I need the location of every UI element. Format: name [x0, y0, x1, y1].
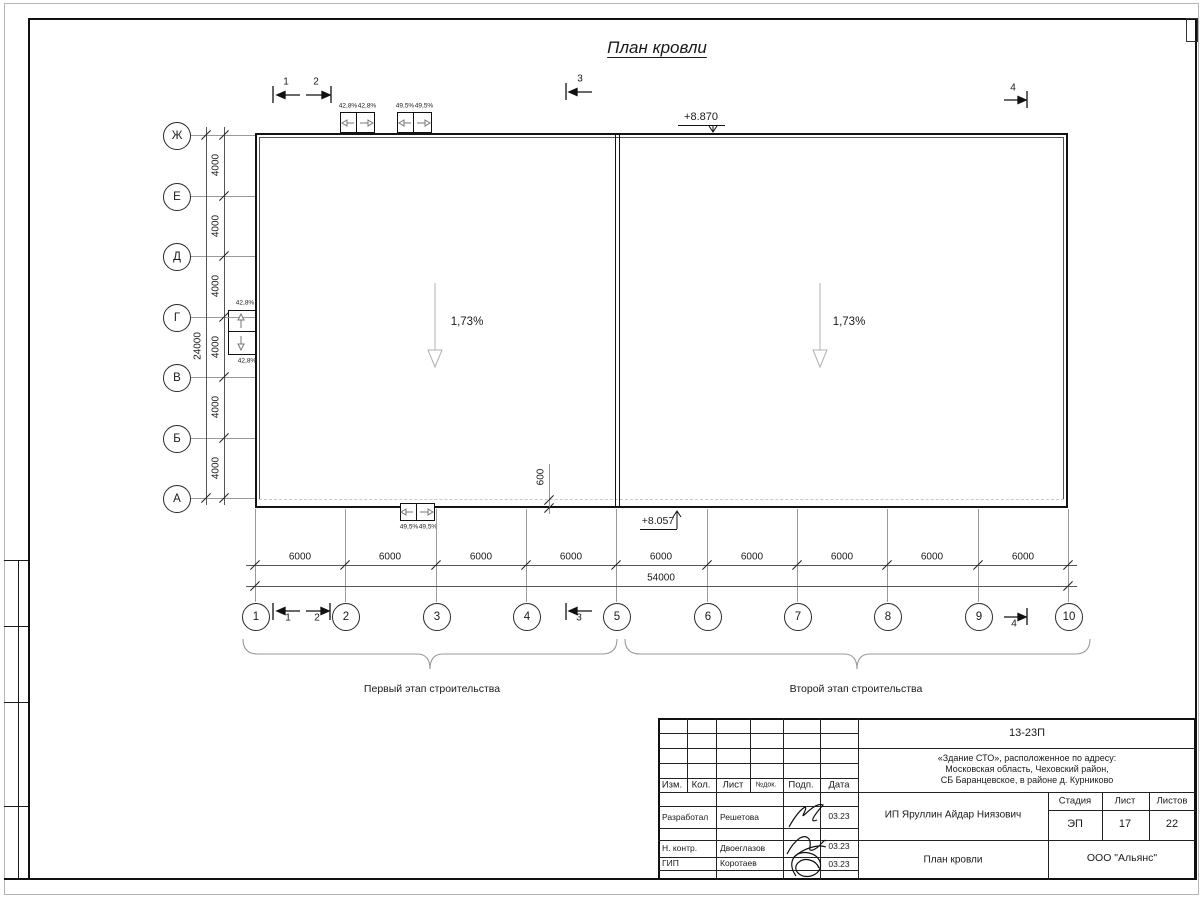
tb-col-data: Дата: [828, 780, 849, 791]
axis-bubble-number: 8: [874, 603, 902, 631]
axis-number: 6: [705, 611, 711, 623]
dim-6000: 6000: [831, 552, 853, 563]
dim-600: 600: [536, 469, 547, 486]
titleblock-line: [1048, 810, 1196, 811]
tb-address-line3: СБ Баранцевское, в районе д. Курниково: [941, 775, 1114, 785]
dim-24000: 24000: [193, 332, 204, 360]
frame-top: [28, 18, 1197, 20]
axis-extension-line: [436, 509, 437, 602]
tb-sheets-label: Листов: [1157, 796, 1188, 807]
funnel-slope-label: 42,8%: [236, 300, 254, 307]
dimension-line-horizontal-steps: [246, 565, 1077, 566]
elevation-bottom-underline: [640, 529, 677, 530]
axis-extension-line: [887, 509, 888, 602]
drain-funnel-box: [400, 503, 417, 521]
axis-letter: Г: [174, 312, 180, 324]
dim-6000: 6000: [1012, 552, 1034, 563]
titleblock-line: [658, 763, 858, 764]
axis-letter: Д: [173, 251, 181, 263]
axis-extension-line: [616, 509, 617, 602]
tb-sheet-name: План кровли: [924, 855, 983, 866]
tb-role: Разработал: [662, 812, 708, 822]
axis-bubble-number: 7: [784, 603, 812, 631]
left-margin-divider: [18, 560, 19, 878]
dimension-line-vertical-total: [206, 127, 207, 505]
stage-joint-wall: [615, 135, 620, 506]
axis-bubble-letter: Д: [163, 243, 191, 271]
left-margin-cell-line: [4, 626, 28, 627]
titleblock-line: [658, 870, 858, 871]
axis-bubble-number: 2: [332, 603, 360, 631]
parapet-inner-right: [1063, 137, 1064, 500]
axis-letter: Б: [173, 433, 181, 445]
tb-sheet-value: 17: [1119, 818, 1131, 830]
tb-col-podp: Подп.: [788, 780, 813, 791]
titleblock-line: [658, 857, 858, 858]
axis-letter: Е: [173, 191, 181, 203]
titleblock-line: [658, 733, 858, 734]
frame-left: [28, 18, 30, 880]
tb-role: ГИП: [662, 858, 679, 868]
dim-6000: 6000: [470, 552, 492, 563]
tb-stage-label: Стадия: [1059, 796, 1091, 807]
tb-sheet-label: Лист: [1115, 796, 1136, 807]
titleblock-line: [716, 718, 717, 880]
titleblock-line: [658, 828, 858, 829]
axis-bubble-letter: Ж: [163, 122, 191, 150]
left-margin-cell-line: [4, 806, 28, 807]
drawing-sheet: План кровли 42,8% 42,8% 49,5% 49,5% 42,8…: [0, 0, 1200, 900]
tb-address-line1: «Здание СТО», расположенное по адресу:: [938, 753, 1117, 763]
funnel-slope-label: 49,5%: [419, 524, 437, 531]
axis-number: 10: [1063, 611, 1076, 623]
dim-6000: 6000: [560, 552, 582, 563]
section-mark-label: 3: [577, 74, 583, 85]
parapet-inner-left: [259, 137, 260, 500]
axis-extension-line: [797, 509, 798, 602]
axis-bubble-number: 6: [694, 603, 722, 631]
section-mark-label: 4: [1011, 619, 1017, 630]
dim-4000: 4000: [211, 154, 222, 176]
titleblock-line: [750, 718, 751, 792]
drawing-title: План кровли: [607, 38, 707, 58]
dim-54000: 54000: [647, 573, 675, 584]
tb-role: Н. контр.: [662, 843, 697, 853]
dim-6000: 6000: [379, 552, 401, 563]
funnel-slope-label: 49,5%: [400, 524, 418, 531]
axis-number: 3: [434, 611, 440, 623]
tb-address-line2: Московская область, Чеховский район,: [945, 764, 1109, 774]
dim-6000: 6000: [921, 552, 943, 563]
drain-funnel-box: [340, 112, 357, 133]
slope-label-right: 1,73%: [833, 316, 866, 328]
axis-extension-line: [1068, 509, 1069, 602]
axis-bubble-letter: В: [163, 364, 191, 392]
section-mark-label: 3: [576, 613, 582, 624]
axis-bubble-letter: Б: [163, 425, 191, 453]
left-margin-cell-line: [4, 560, 28, 561]
funnel-slope-label: 42,8%: [238, 358, 256, 365]
tb-stage-value: ЭП: [1067, 818, 1083, 830]
dim-6000: 6000: [650, 552, 672, 563]
tb-company: ООО "Альянс": [1087, 852, 1157, 864]
roof-outline: [255, 133, 1068, 508]
tb-name: Решетова: [720, 812, 759, 822]
axis-number: 5: [614, 611, 620, 623]
axis-bubble-letter: Г: [163, 304, 191, 332]
parapet-inner-bottom-dashed: [259, 499, 1064, 500]
funnel-slope-label: 42,8%: [358, 103, 376, 110]
dim-6000: 6000: [289, 552, 311, 563]
tb-name: Коротаев: [720, 858, 757, 868]
elevation-bottom-label: +8.057: [642, 515, 674, 527]
axis-bubble-number: 4: [513, 603, 541, 631]
tb-col-ndok: №док.: [756, 782, 777, 789]
drain-funnel-box: [397, 112, 414, 133]
axis-number: 2: [343, 611, 349, 623]
axis-extension-line: [526, 509, 527, 602]
axis-bubble-number: 3: [423, 603, 451, 631]
axis-number: 1: [253, 611, 259, 623]
dim-6000: 6000: [741, 552, 763, 563]
axis-bubble-letter: Е: [163, 183, 191, 211]
drain-funnel-box: [228, 310, 256, 332]
tb-col-kol: Кол.: [692, 780, 711, 791]
slope-label-left: 1,73%: [451, 316, 484, 328]
titleblock-line: [658, 806, 858, 807]
frame-corner-box: [1186, 18, 1198, 42]
dim-4000: 4000: [211, 457, 222, 479]
dim-4000: 4000: [211, 275, 222, 297]
axis-bubble-number: 10: [1055, 603, 1083, 631]
drain-funnel-box: [228, 331, 256, 355]
elevation-top-label: +8.870: [684, 111, 718, 123]
section-mark-label: 1: [285, 613, 291, 624]
tb-col-izm: Изм.: [662, 780, 682, 791]
left-margin-cell-line: [4, 702, 28, 703]
axis-letter: А: [173, 493, 181, 505]
funnel-slope-label: 49,5%: [415, 103, 433, 110]
drain-funnel-box: [416, 503, 435, 521]
axis-extension-line: [707, 509, 708, 602]
tb-date: 03.23: [828, 859, 849, 869]
axis-bubble-number: 1: [242, 603, 270, 631]
section-mark-label: 4: [1010, 83, 1016, 94]
axis-bubble-number: 9: [965, 603, 993, 631]
section-mark-label: 1: [283, 77, 289, 88]
titleblock-line: [820, 718, 821, 880]
axis-number: 8: [885, 611, 891, 623]
titleblock-line: [1048, 792, 1049, 880]
axis-extension-line: [255, 509, 256, 602]
dimension-line-horizontal-total: [246, 586, 1077, 587]
axis-extension-line: [978, 509, 979, 602]
tb-doc-number: 13-23П: [1009, 727, 1045, 739]
tb-client: ИП Яруллин Айдар Ниязович: [885, 810, 1022, 821]
tb-date: 03.23: [828, 811, 849, 821]
axis-bubble-letter: А: [163, 485, 191, 513]
funnel-slope-label: 49,5%: [396, 103, 414, 110]
drain-funnel-box: [413, 112, 432, 133]
titleblock-line: [783, 718, 784, 880]
drain-funnel-box: [356, 112, 375, 133]
titleblock-line: [687, 718, 688, 792]
titleblock-line: [658, 792, 1196, 793]
axis-number: 7: [795, 611, 801, 623]
axis-letter: Ж: [172, 130, 183, 142]
tb-name: Двоеглазов: [720, 843, 765, 853]
dim-4000: 4000: [211, 336, 222, 358]
parapet-inner-top: [259, 137, 1064, 138]
titleblock-line: [1149, 792, 1150, 840]
tb-sheets-value: 22: [1166, 818, 1178, 830]
section-mark-label: 2: [314, 613, 320, 624]
axis-number: 9: [976, 611, 982, 623]
titleblock-line: [1102, 792, 1103, 840]
axis-bubble-number: 5: [603, 603, 631, 631]
axis-number: 4: [524, 611, 530, 623]
axis-letter: В: [173, 372, 181, 384]
elevation-top-underline: [678, 125, 725, 126]
dim-4000: 4000: [211, 396, 222, 418]
section-mark-label: 2: [313, 77, 319, 88]
titleblock-line: [658, 840, 1196, 841]
titleblock-line: [858, 718, 859, 880]
dim-4000: 4000: [211, 215, 222, 237]
tb-col-list: Лист: [723, 780, 744, 791]
titleblock-line: [658, 748, 1196, 749]
tb-date: 03.23: [828, 841, 849, 851]
funnel-slope-label: 42,8%: [339, 103, 357, 110]
stage-one-label: Первый этап строительства: [364, 683, 500, 695]
stage-two-label: Второй этап строительства: [790, 683, 923, 695]
axis-extension-line: [345, 509, 346, 602]
